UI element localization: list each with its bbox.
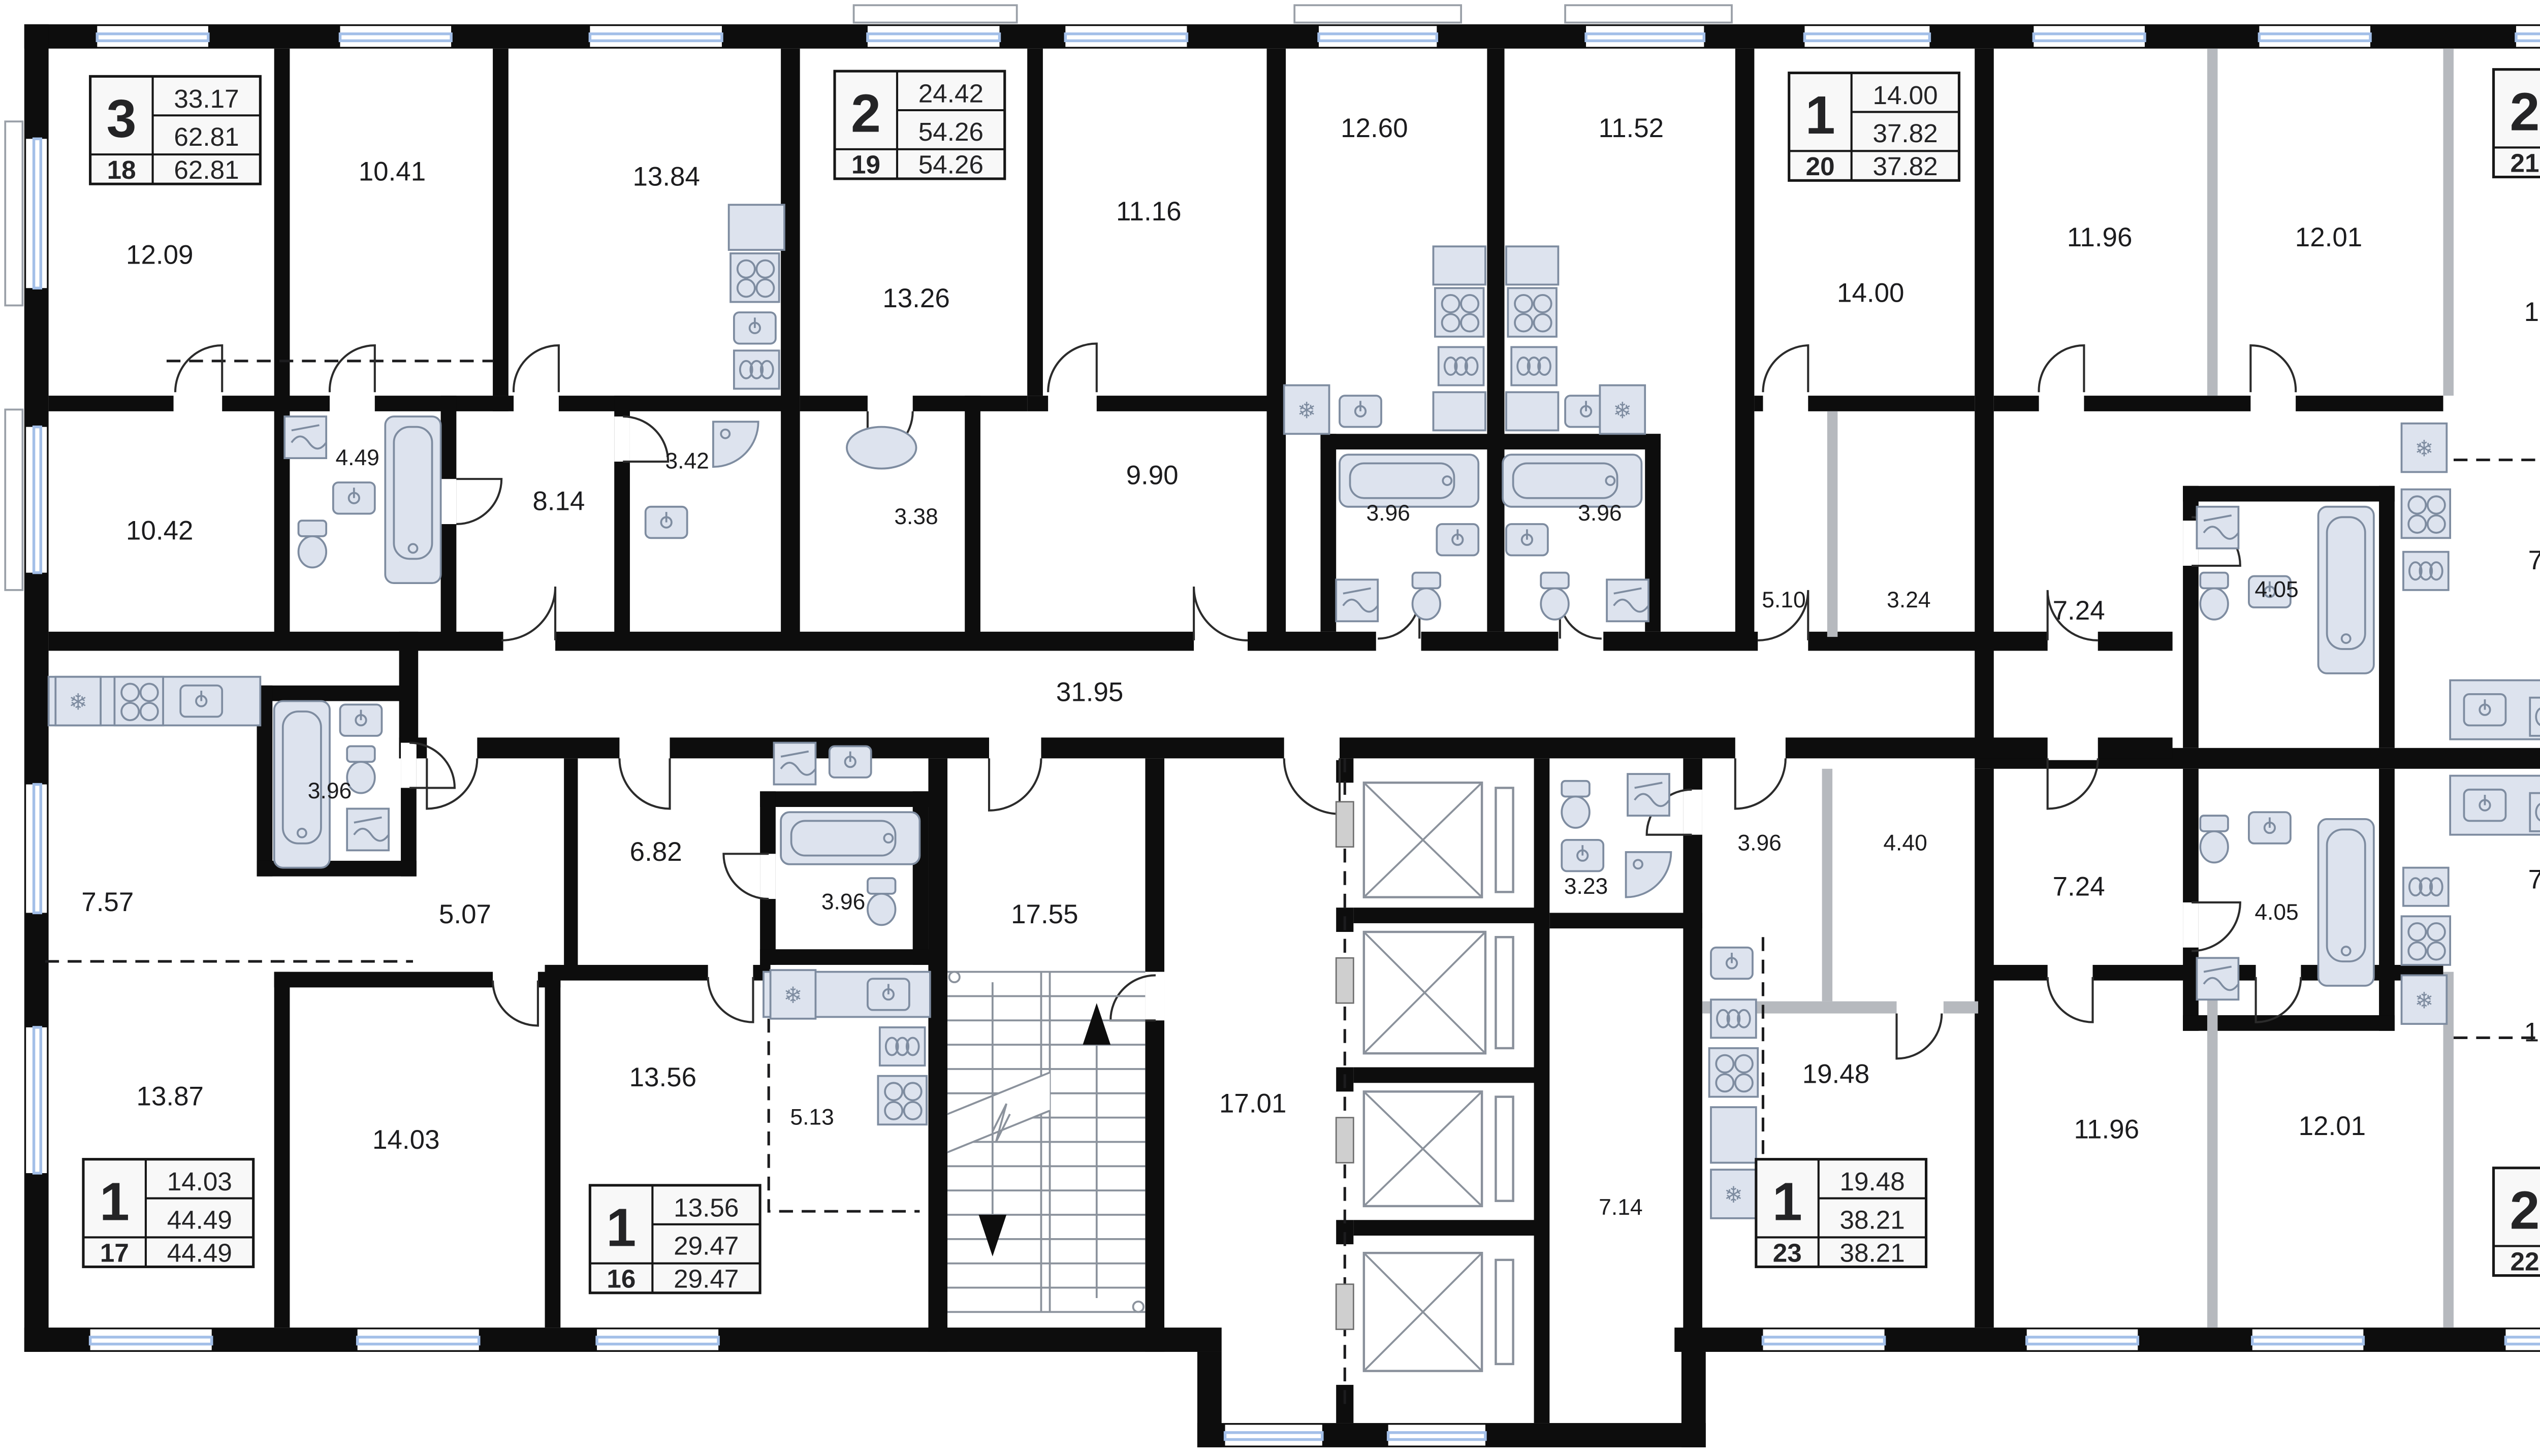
apartment-type: 2 — [851, 84, 881, 144]
room-area-label: 17.55 — [1011, 899, 1078, 929]
window — [2505, 1330, 2540, 1350]
room-area-label: 7.57 — [81, 887, 134, 917]
washing-machine-icon — [1336, 579, 1378, 621]
door-arc — [1763, 345, 1808, 392]
window — [1065, 26, 1187, 47]
area-value: 44.49 — [167, 1238, 232, 1267]
room-area-label: 11.16 — [1116, 197, 1182, 227]
apartment-type: 2 — [2510, 1180, 2540, 1240]
apartment-number: 17 — [100, 1238, 129, 1267]
bathtub-icon — [385, 416, 440, 583]
window — [1225, 1425, 1322, 1445]
room-area-label: 16.99 — [2524, 1017, 2540, 1047]
elevator-shaft-icon — [1336, 932, 1513, 1053]
stove-icon — [1508, 288, 1557, 337]
fridge-icon — [1284, 385, 1329, 434]
balcony-slab — [1294, 5, 1461, 22]
sink-icon — [830, 746, 871, 778]
door-arc — [2250, 345, 2296, 392]
stove-icon — [114, 677, 163, 726]
toilet-icon — [1412, 573, 1440, 620]
apartment-info-box: 2 21 23.97 59.63 59.63 — [2494, 70, 2540, 178]
room-area-label: 13.87 — [137, 1082, 204, 1112]
window — [26, 785, 47, 913]
window — [1763, 1330, 1884, 1350]
shower-tray-icon — [847, 427, 916, 469]
room-area-label: 3.96 — [1737, 830, 1781, 855]
oven-icon — [734, 350, 779, 389]
room-area-label: 12.01 — [2295, 222, 2362, 252]
bathtub-icon — [781, 812, 919, 864]
window — [2516, 26, 2540, 47]
sink-icon — [180, 686, 222, 717]
room-area-label: 7.24 — [2053, 596, 2105, 626]
room-area-labels: 12.09 10.41 13.84 13.26 11.16 12.60 11.5… — [81, 113, 2540, 1220]
room-area-label: 3.42 — [665, 449, 709, 474]
door-arc — [989, 758, 1041, 811]
room-area-label: 3.96 — [1578, 501, 1622, 526]
apartment-type: 2 — [2510, 82, 2540, 142]
apartment-number: 23 — [1773, 1238, 1802, 1267]
area-value: 29.47 — [674, 1265, 739, 1293]
room-area-label: 3.96 — [1366, 501, 1410, 526]
sink-icon — [2464, 694, 2505, 726]
fridge-icon — [1711, 1170, 1756, 1218]
oven-icon — [1511, 347, 1557, 385]
window — [90, 1330, 212, 1350]
sink-icon — [1437, 524, 1478, 556]
kitchen-counter — [1433, 246, 1485, 284]
room-area-label: 7.38 — [2528, 545, 2540, 575]
washing-machine-icon — [1628, 774, 1669, 816]
room-area-label: 3.23 — [1564, 874, 1608, 899]
apartment-info-box: 3 18 33.17 62.81 62.81 — [90, 76, 261, 184]
sink-icon — [340, 704, 382, 736]
area-value: 62.81 — [174, 155, 239, 184]
apartment-info-box: 2 22 23.97 59.63 59.63 — [2494, 1168, 2540, 1276]
toilet-icon — [299, 521, 327, 567]
kitchen-counter — [1506, 392, 1558, 430]
sink-icon — [1506, 524, 1548, 556]
area-value: 62.81 — [174, 122, 239, 151]
oven-icon — [1439, 347, 1484, 385]
sink-icon — [734, 312, 776, 344]
apartment-type: 1 — [100, 1172, 130, 1232]
oven-icon — [2403, 868, 2449, 906]
sink-icon — [868, 979, 909, 1010]
window — [2252, 1330, 2364, 1350]
fridge-icon — [55, 677, 101, 726]
apartment-info-box: 2 19 24.42 54.26 54.26 — [835, 71, 1005, 179]
stove-icon — [1709, 1048, 1758, 1097]
kitchen-counter — [1711, 1107, 1756, 1162]
window — [1804, 26, 1929, 47]
room-area-label: 5.10 — [1762, 588, 1805, 612]
door-arc — [175, 345, 222, 392]
room-area-label: 7.24 — [2053, 871, 2105, 901]
window — [2034, 26, 2145, 47]
fixtures — [49, 205, 2540, 1218]
stove-icon — [2401, 916, 2450, 965]
apartment-number: 22 — [2511, 1247, 2539, 1276]
apartment-info-box: 1 20 14.00 37.82 37.82 — [1789, 73, 1959, 181]
floor-plan-drawing: ❄ — [0, 0, 2540, 1456]
room-area-label: 8.14 — [532, 487, 585, 516]
apartment-info-box: 1 17 14.03 44.49 44.49 — [83, 1159, 253, 1268]
window — [26, 139, 47, 288]
shower-icon — [713, 422, 758, 467]
window — [358, 1330, 479, 1350]
sink-icon — [1562, 840, 1603, 871]
room-area-label: 12.09 — [126, 240, 193, 270]
bathtub-icon — [2319, 819, 2374, 986]
room-area-label: 13.56 — [629, 1062, 696, 1092]
room-area-label: 4.40 — [1883, 830, 1927, 855]
door-arc — [619, 758, 670, 808]
floor-plan: ❄ — [0, 0, 2540, 1456]
window — [26, 427, 47, 573]
area-value: 44.49 — [167, 1205, 232, 1234]
balcony-slab — [5, 409, 22, 590]
area-value: 24.42 — [918, 79, 983, 108]
apartment-number: 20 — [1806, 152, 1835, 181]
door-arc — [1284, 758, 1340, 814]
room-area-label: 5.13 — [790, 1105, 834, 1129]
shower-icon — [1626, 852, 1671, 897]
room-area-label: 9.90 — [1126, 460, 1179, 490]
window — [1586, 26, 1704, 47]
sink-icon — [2464, 790, 2505, 821]
room-area-label: 4.05 — [2255, 900, 2298, 925]
apartment-number: 18 — [107, 155, 136, 184]
window — [590, 26, 722, 47]
elevator-shaft-icon — [1336, 1253, 1513, 1371]
room-area-label: 12.01 — [2299, 1111, 2366, 1141]
stove-icon — [1435, 288, 1484, 337]
stair-arrow-down-icon — [979, 1215, 1007, 1256]
room-area-label: 6.82 — [630, 837, 682, 867]
area-value: 54.26 — [918, 117, 983, 146]
room-area-label: 4.05 — [2255, 577, 2298, 602]
staircase — [947, 972, 1145, 1312]
room-area-label: 13.84 — [632, 162, 700, 192]
apartment-type: 1 — [1772, 1172, 1802, 1232]
room-area-label: 3.96 — [308, 779, 352, 803]
room-area-label: 14.00 — [1837, 278, 1904, 308]
toilet-icon — [1562, 781, 1590, 828]
apartment-info-box: 1 16 13.56 29.47 29.47 — [590, 1185, 760, 1293]
fridge-icon — [771, 970, 816, 1019]
stair-arrow-up-icon — [1083, 1003, 1110, 1045]
area-value: 14.03 — [167, 1167, 232, 1196]
room-area-label: 11.96 — [2067, 222, 2133, 252]
area-value: 14.00 — [1872, 81, 1938, 110]
area-value: 13.56 — [674, 1193, 739, 1222]
apartment-number: 19 — [851, 150, 880, 179]
balcony-slab — [854, 5, 1017, 22]
room-area-label: 7.38 — [2528, 865, 2540, 895]
walls — [24, 24, 2540, 1447]
door-arc — [1048, 344, 1097, 393]
balcony-slab — [1565, 5, 1732, 22]
sink-icon — [333, 482, 375, 514]
washing-machine-icon — [347, 808, 389, 850]
room-area-label: 16.99 — [2524, 297, 2540, 327]
apartment-number: 16 — [607, 1265, 636, 1293]
area-value: 37.82 — [1872, 152, 1938, 181]
apartment-number: 21 — [2511, 148, 2539, 177]
room-area-label: 11.96 — [2074, 1115, 2140, 1145]
toilet-icon — [868, 878, 896, 925]
balcony-slab — [5, 121, 22, 305]
stair-break — [947, 1073, 1050, 1152]
oven-icon — [1711, 999, 1756, 1038]
door-arc — [514, 345, 559, 392]
room-area-label: 13.26 — [882, 283, 949, 313]
kitchen-counter — [729, 205, 784, 250]
window — [2259, 26, 2370, 47]
apartment-info-box: 1 23 19.48 38.21 38.21 — [1756, 1159, 1926, 1268]
stairs-icon — [947, 972, 1145, 1312]
area-value: 37.82 — [1872, 119, 1938, 148]
window — [97, 26, 208, 47]
area-value: 29.47 — [674, 1232, 739, 1260]
elevator-shaft-icon — [1336, 783, 1513, 897]
oven-icon — [880, 1027, 925, 1065]
washing-machine-icon — [1607, 579, 1648, 621]
window — [340, 26, 452, 47]
door-arc — [2039, 345, 2084, 392]
room-area-label: 10.41 — [359, 156, 426, 186]
window — [868, 26, 1000, 47]
area-value: 33.17 — [174, 84, 239, 113]
apartment-type: 1 — [1805, 85, 1835, 145]
fridge-icon — [1600, 385, 1645, 434]
apartment-type: 1 — [606, 1198, 636, 1258]
room-area-label: 10.42 — [126, 516, 193, 546]
room-area-label: 4.49 — [335, 445, 379, 470]
toilet-icon — [1541, 573, 1569, 620]
oven-icon — [2530, 698, 2540, 736]
area-value: 19.48 — [1840, 1167, 1905, 1196]
room-area-label: 11.52 — [1599, 113, 1664, 143]
room-area-label: 14.03 — [372, 1125, 439, 1155]
window — [2027, 1330, 2138, 1350]
door-arc — [456, 479, 501, 524]
washing-machine-icon — [284, 416, 326, 458]
area-value: 38.21 — [1840, 1205, 1905, 1234]
sink-icon — [1711, 948, 1753, 979]
elevator-shaft-icon — [1336, 1091, 1513, 1206]
kitchen-counter — [1433, 392, 1485, 430]
area-value: 54.26 — [918, 150, 983, 179]
room-area-label: 7.14 — [1599, 1195, 1642, 1220]
corridor-area-label: 31.95 — [1056, 677, 1123, 707]
apartment-type: 3 — [107, 89, 137, 149]
oven-icon — [2530, 793, 2540, 831]
oven-icon — [2403, 552, 2449, 590]
stove-icon — [2401, 490, 2450, 538]
window — [26, 1027, 47, 1173]
stove-icon — [731, 253, 779, 302]
toilet-icon — [2200, 816, 2228, 862]
apartment-info-boxes: 3 18 33.17 62.81 62.81 2 19 24.42 54.26 … — [83, 70, 2540, 1293]
bathtub-icon — [1503, 455, 1641, 507]
room-area-label: 17.01 — [1219, 1088, 1286, 1118]
room-area-label: 3.96 — [821, 890, 865, 915]
room-area-label: 19.48 — [1802, 1059, 1869, 1089]
washing-machine-icon — [2197, 958, 2238, 999]
bathtub-icon — [1340, 455, 1478, 507]
fridge-icon — [2401, 424, 2447, 472]
fridge-icon — [2401, 975, 2447, 1024]
room-area-label: 3.38 — [894, 504, 938, 529]
room-area-label: 12.60 — [1341, 113, 1408, 143]
room-area-label: 5.07 — [439, 899, 491, 929]
stove-icon — [878, 1076, 927, 1125]
door-arc — [330, 345, 375, 392]
bathtub-icon — [2319, 507, 2374, 673]
kitchen-counter — [1506, 246, 1558, 284]
room-area-label: 3.24 — [1887, 588, 1930, 612]
window — [1388, 1425, 1485, 1445]
window — [597, 1330, 718, 1350]
sink-icon — [646, 507, 687, 538]
door-arc — [1896, 1014, 1942, 1059]
door-arc — [1735, 758, 1786, 808]
sink-icon — [2249, 812, 2291, 844]
window — [1319, 26, 1437, 47]
washing-machine-icon — [2197, 507, 2238, 548]
toilet-icon — [2200, 573, 2228, 620]
area-value: 38.21 — [1840, 1238, 1905, 1267]
washing-machine-icon — [774, 743, 815, 785]
door-arc — [2192, 902, 2240, 951]
sink-icon — [1340, 396, 1381, 427]
door-arc — [427, 758, 477, 808]
